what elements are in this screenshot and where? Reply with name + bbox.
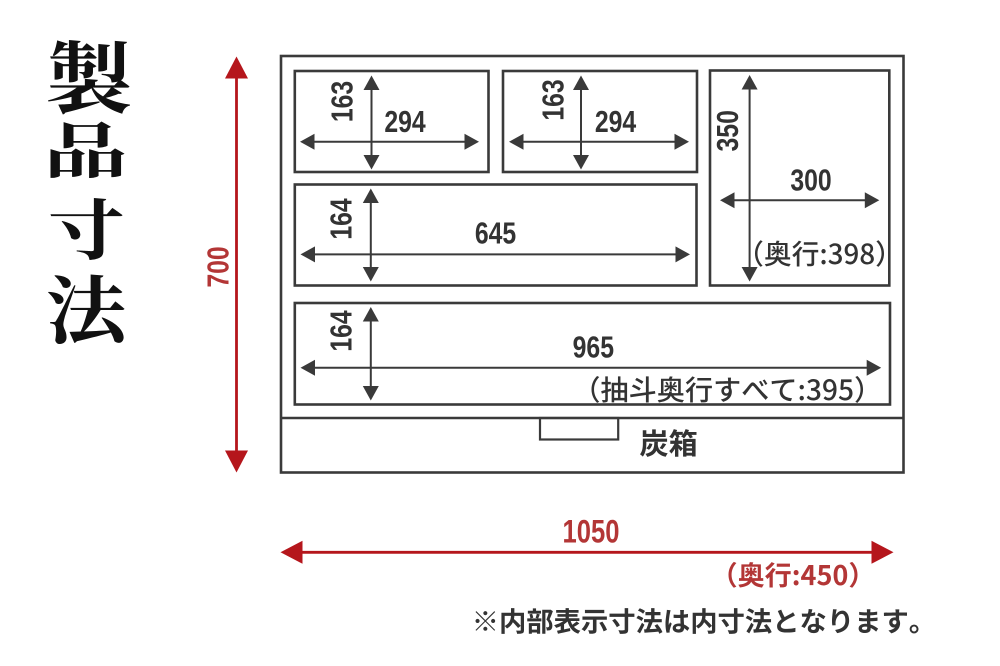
svg-text:163: 163 <box>536 79 570 120</box>
svg-text:350: 350 <box>710 110 744 151</box>
svg-text:164: 164 <box>324 198 358 240</box>
svg-text:294: 294 <box>595 104 637 138</box>
svg-text:700: 700 <box>201 246 235 287</box>
svg-text:965: 965 <box>573 330 614 364</box>
svg-text:300: 300 <box>790 163 831 197</box>
svg-text:164: 164 <box>324 310 358 352</box>
svg-text:1050: 1050 <box>563 515 620 550</box>
svg-text:645: 645 <box>475 216 516 250</box>
svg-text:294: 294 <box>384 104 426 138</box>
svg-text:163: 163 <box>325 81 359 122</box>
